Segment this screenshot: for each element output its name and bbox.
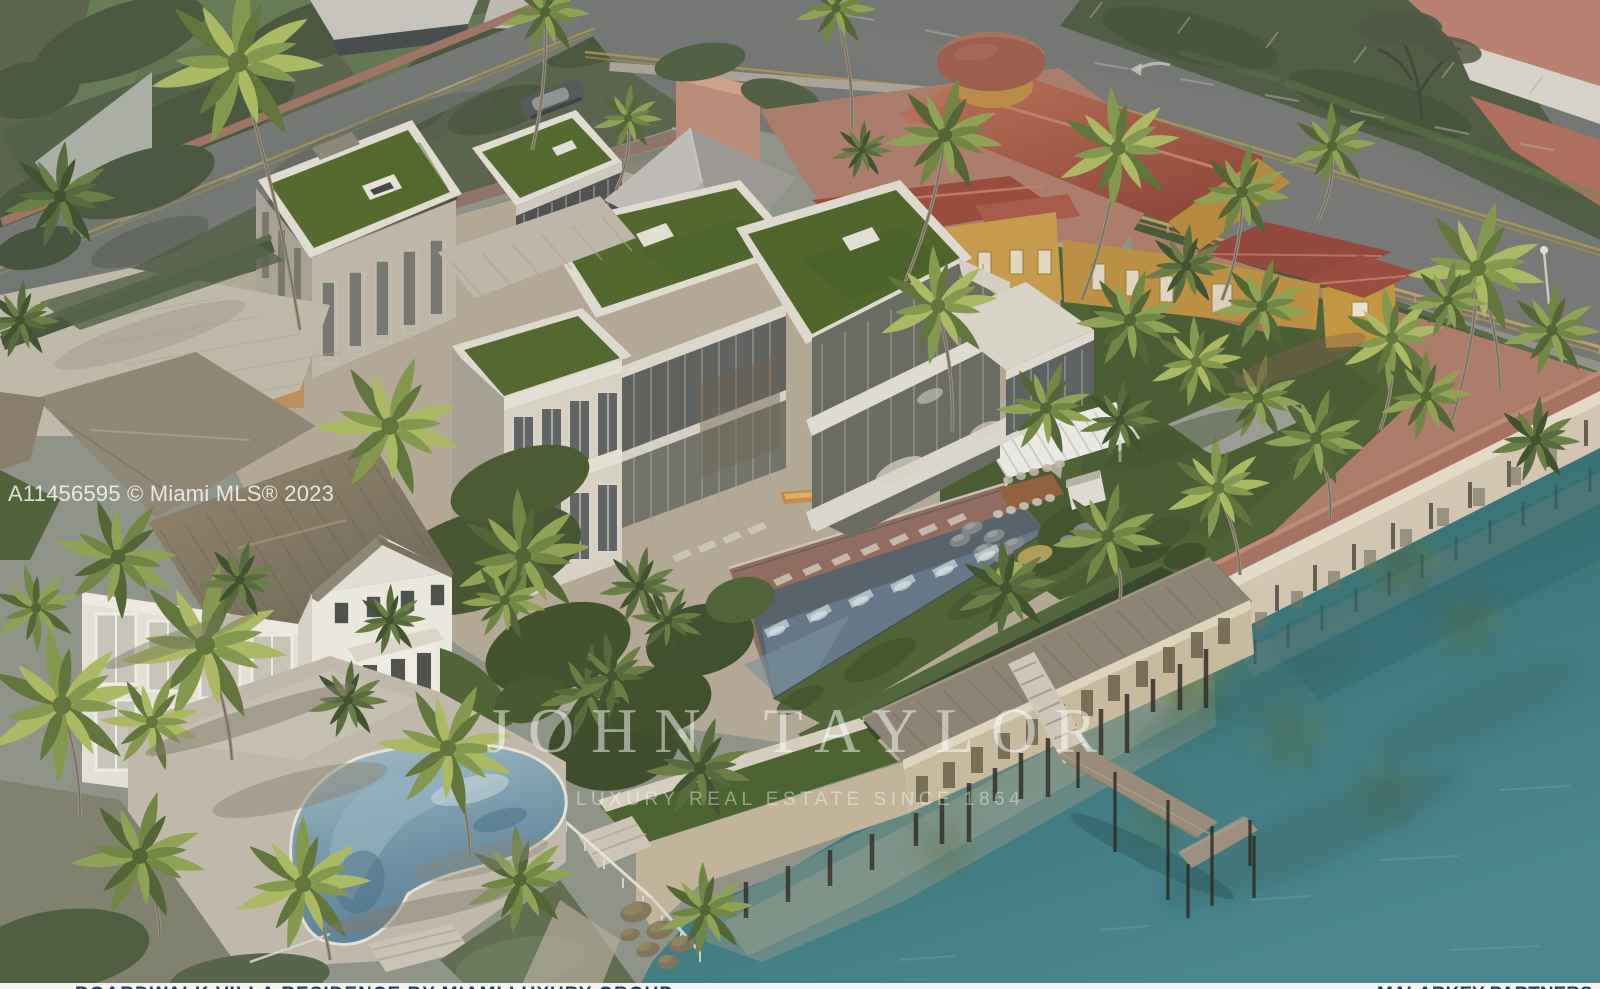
svg-text:BOARDWALK VILLA RESIDENCE BY M: BOARDWALK VILLA RESIDENCE BY MIAMI LUXUR… [75, 984, 673, 989]
svg-text:MALARKEY PARTNERS: MALARKEY PARTNERS [1377, 984, 1593, 989]
svg-text:A11456595 © Miami MLS® 2023: A11456595 © Miami MLS® 2023 [8, 481, 334, 506]
svg-text:JOHN TAYLOR: JOHN TAYLOR [486, 695, 1114, 766]
svg-text:LUXURY REAL ESTATE SINCE 1864: LUXURY REAL ESTATE SINCE 1864 [576, 789, 1024, 810]
